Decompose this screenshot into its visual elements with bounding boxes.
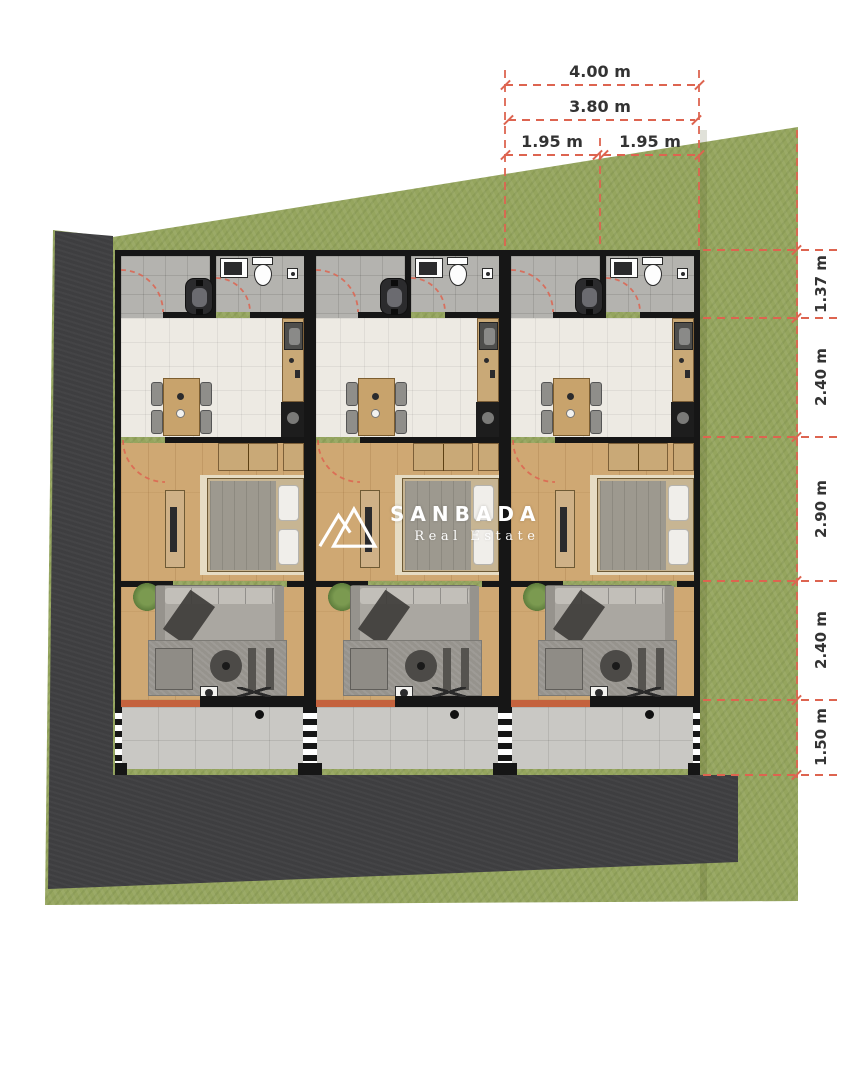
dining-chair	[151, 410, 163, 434]
tv-console	[395, 696, 502, 707]
bench	[443, 648, 451, 690]
sink-bowl	[289, 328, 300, 345]
brand-name: SANBADA	[390, 504, 541, 525]
dimension-label: 1.95 m	[512, 132, 592, 151]
dimension-line	[703, 436, 838, 438]
dining-chair	[541, 410, 553, 434]
dining-chair	[200, 382, 212, 406]
bench	[638, 648, 646, 690]
dining-chair	[346, 382, 358, 406]
logo-text: SANBADA Real Estate	[390, 504, 541, 544]
pendant-light	[255, 710, 264, 719]
sink-bowl	[484, 328, 495, 345]
tv-console	[590, 696, 697, 707]
table-decor	[222, 662, 230, 670]
wall-living-top-right	[482, 581, 499, 587]
dining-kitchen-floor	[511, 318, 694, 437]
motorbike-wheel	[391, 309, 398, 315]
drain-hole	[291, 272, 295, 276]
sink-basin	[224, 262, 242, 275]
sofa-armrest	[156, 586, 165, 643]
bench	[461, 648, 469, 690]
motorbike-wheel	[586, 309, 593, 315]
motorbike-seat	[387, 288, 402, 307]
tv-console	[200, 696, 307, 707]
column-post	[115, 763, 127, 775]
dining-kitchen-floor	[121, 318, 304, 437]
dining-chair	[395, 382, 407, 406]
coffee-table	[405, 650, 437, 682]
wall-living-top-right	[287, 581, 304, 587]
column-post	[505, 763, 517, 775]
wall-left	[310, 250, 316, 707]
bench	[656, 648, 664, 690]
kitchen-sink	[284, 322, 303, 350]
column-post	[493, 763, 505, 775]
ottoman	[155, 648, 193, 690]
pendant-light	[450, 710, 459, 719]
floor-drain	[677, 268, 688, 279]
kitchen-sink	[479, 322, 498, 350]
wardrobe-divider	[248, 444, 249, 471]
wardrobe	[608, 443, 668, 471]
dim-guide-left	[504, 70, 506, 250]
motorbike-seat	[582, 288, 597, 307]
dimension-line	[505, 84, 700, 86]
brand-logo: SANBADA Real Estate	[318, 504, 548, 564]
motorbike-wheel	[391, 280, 398, 286]
pillow	[668, 529, 689, 565]
terrace-floor	[121, 707, 304, 769]
column-post	[298, 763, 310, 775]
dimension-line	[703, 699, 838, 701]
dimension-label: 2.40 m	[812, 342, 828, 412]
pendant-light	[645, 710, 654, 719]
bench	[248, 648, 256, 690]
unit-1	[115, 250, 310, 775]
dining-chair	[590, 410, 602, 434]
kitchen-utensil	[295, 370, 300, 378]
terrace-fence	[303, 707, 310, 763]
stove	[476, 402, 499, 437]
tv-stand	[432, 687, 466, 697]
dining-chair	[200, 410, 212, 434]
wardrobe-divider	[443, 444, 444, 471]
pillow	[668, 485, 689, 521]
bench	[266, 648, 274, 690]
dimension-label: 4.00 m	[560, 62, 640, 81]
motorbike	[380, 278, 408, 315]
sink-basin	[614, 262, 632, 275]
motorbike-seat	[192, 288, 207, 307]
column-post	[310, 763, 322, 775]
tableware	[566, 409, 575, 418]
bed	[597, 478, 694, 572]
tableware	[176, 409, 185, 418]
coffee-table	[210, 650, 242, 682]
terrace-fence	[115, 707, 122, 763]
dining-kitchen-floor	[316, 318, 499, 437]
pillow	[278, 529, 299, 565]
drain-hole	[486, 272, 490, 276]
bathroom-sink	[220, 258, 248, 278]
dimension-line	[508, 119, 695, 121]
coffee-table	[600, 650, 632, 682]
table-decor	[612, 662, 620, 670]
bed	[207, 478, 304, 572]
stove-pot	[287, 412, 299, 424]
mountain-peaks-icon	[318, 504, 380, 550]
motorbike-wheel	[196, 309, 203, 315]
floor-drain	[287, 268, 298, 279]
dimension-label: 1.37 m	[812, 249, 828, 319]
wardrobe	[283, 443, 304, 471]
dimension-label: 2.90 m	[812, 474, 828, 544]
ottoman	[545, 648, 583, 690]
dining-chair	[590, 382, 602, 406]
stove-pot	[677, 412, 689, 424]
sofa-armrest	[351, 586, 360, 643]
kitchen-utensil	[484, 358, 489, 363]
sofa-armrest	[470, 586, 479, 643]
wardrobe	[478, 443, 499, 471]
terrace-floor	[316, 707, 499, 769]
bathroom-sink	[610, 258, 638, 278]
sofa	[155, 585, 283, 642]
dimension-label: 3.80 m	[560, 97, 640, 116]
wardrobe-divider	[638, 444, 639, 471]
sofa-armrest	[665, 586, 674, 643]
dining-chair	[151, 382, 163, 406]
terrace-floor	[511, 707, 694, 769]
motorbike-wheel	[196, 280, 203, 286]
tv-stand	[237, 687, 271, 697]
tableware	[567, 393, 574, 400]
tableware	[371, 409, 380, 418]
bed-blanket	[210, 481, 276, 570]
dining-chair	[541, 382, 553, 406]
terrace-fence	[310, 707, 317, 763]
dining-table	[163, 378, 200, 436]
terrace-fence	[505, 707, 512, 763]
tableware	[177, 393, 184, 400]
wall-left	[115, 250, 121, 707]
motorbike	[185, 278, 213, 315]
tv-stand	[627, 687, 661, 697]
dimension-label: 1.50 m	[812, 702, 828, 772]
dining-chair	[346, 410, 358, 434]
sofa	[545, 585, 673, 642]
terrace-fence	[498, 707, 505, 763]
brand-tagline: Real Estate	[390, 529, 541, 544]
dresser-tv	[560, 507, 567, 552]
sink-bowl	[679, 328, 690, 345]
ottoman	[350, 648, 388, 690]
site-plan-canvas: 4.00 m 3.80 m 1.95 m 1.95 m 1.37 m 2.40 …	[0, 0, 843, 1080]
wardrobe	[413, 443, 473, 471]
dining-table	[358, 378, 395, 436]
dresser-tv	[170, 507, 177, 552]
pillow	[278, 485, 299, 521]
sofa-armrest	[546, 586, 555, 643]
right-dimensions: 1.37 m 2.40 m 2.90 m 2.40 m 1.50 m	[690, 0, 843, 950]
dimension-label: 2.40 m	[812, 605, 828, 675]
dimension-label: 1.95 m	[610, 132, 690, 151]
table-decor	[417, 662, 425, 670]
sofa	[350, 585, 478, 642]
wall-left	[505, 250, 511, 707]
sofa-armrest	[275, 586, 284, 643]
kitchen-utensil	[490, 370, 495, 378]
kitchen-utensil	[679, 358, 684, 363]
bathroom-sink	[415, 258, 443, 278]
dim-guide-vertical	[796, 130, 798, 778]
stove-pot	[482, 412, 494, 424]
floor-drain	[482, 268, 493, 279]
dining-table	[553, 378, 590, 436]
bed-blanket	[600, 481, 666, 570]
wardrobe	[218, 443, 278, 471]
drain-hole	[681, 272, 685, 276]
kitchen-utensil	[289, 358, 294, 363]
motorbike	[575, 278, 603, 315]
dining-chair	[395, 410, 407, 434]
motorbike-wheel	[586, 280, 593, 286]
sink-basin	[419, 262, 437, 275]
stove	[281, 402, 304, 437]
dimension-line	[703, 774, 838, 776]
dresser	[555, 490, 575, 568]
dimension-line	[703, 580, 838, 582]
tableware	[372, 393, 379, 400]
dresser	[165, 490, 185, 568]
